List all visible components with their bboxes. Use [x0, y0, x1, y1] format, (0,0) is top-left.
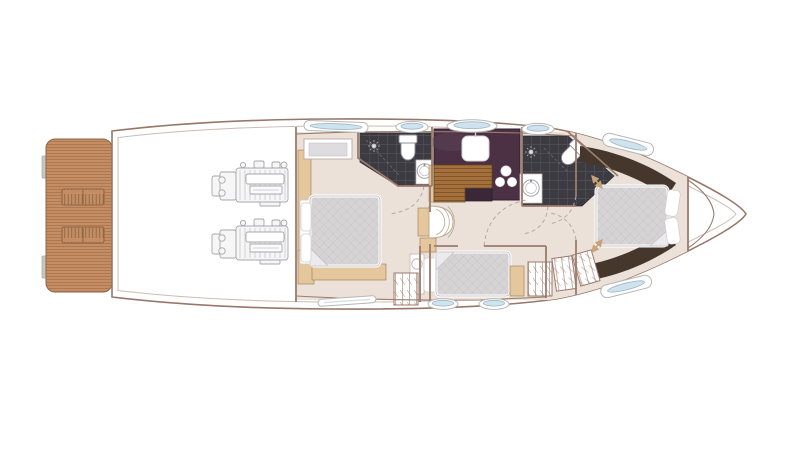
stair-side-cabinet: [418, 208, 429, 236]
day-basin: [520, 174, 542, 203]
deck-plan-canvas: [0, 0, 791, 453]
stair-base-cabinet: [420, 238, 436, 252]
porthole-top-1: [396, 121, 428, 132]
swim-platform: [42, 139, 112, 292]
galley: [429, 129, 520, 202]
guest-nightstand: [510, 266, 524, 296]
porthole-bottom-1: [428, 299, 458, 310]
aft-double-bed: [310, 196, 380, 266]
forward-wardrobe-1: [552, 256, 576, 291]
aft-cabin-vanity-top: [309, 143, 347, 156]
aft-bed-pillow-1: [301, 203, 311, 231]
yacht-deck-plan: [0, 0, 791, 453]
porthole-top-3: [522, 123, 554, 134]
galley-sink: [462, 136, 489, 161]
window-aft-top: [304, 120, 368, 132]
porthole-bottom-2: [479, 299, 509, 310]
porthole-top-2: [447, 120, 497, 132]
guest-wardrobe-right: [528, 262, 552, 296]
aft-bed-pillow-2: [301, 234, 311, 262]
forward-island-bed: [596, 186, 668, 246]
teak-platform: [46, 139, 112, 292]
aft-toilet: [399, 135, 417, 160]
